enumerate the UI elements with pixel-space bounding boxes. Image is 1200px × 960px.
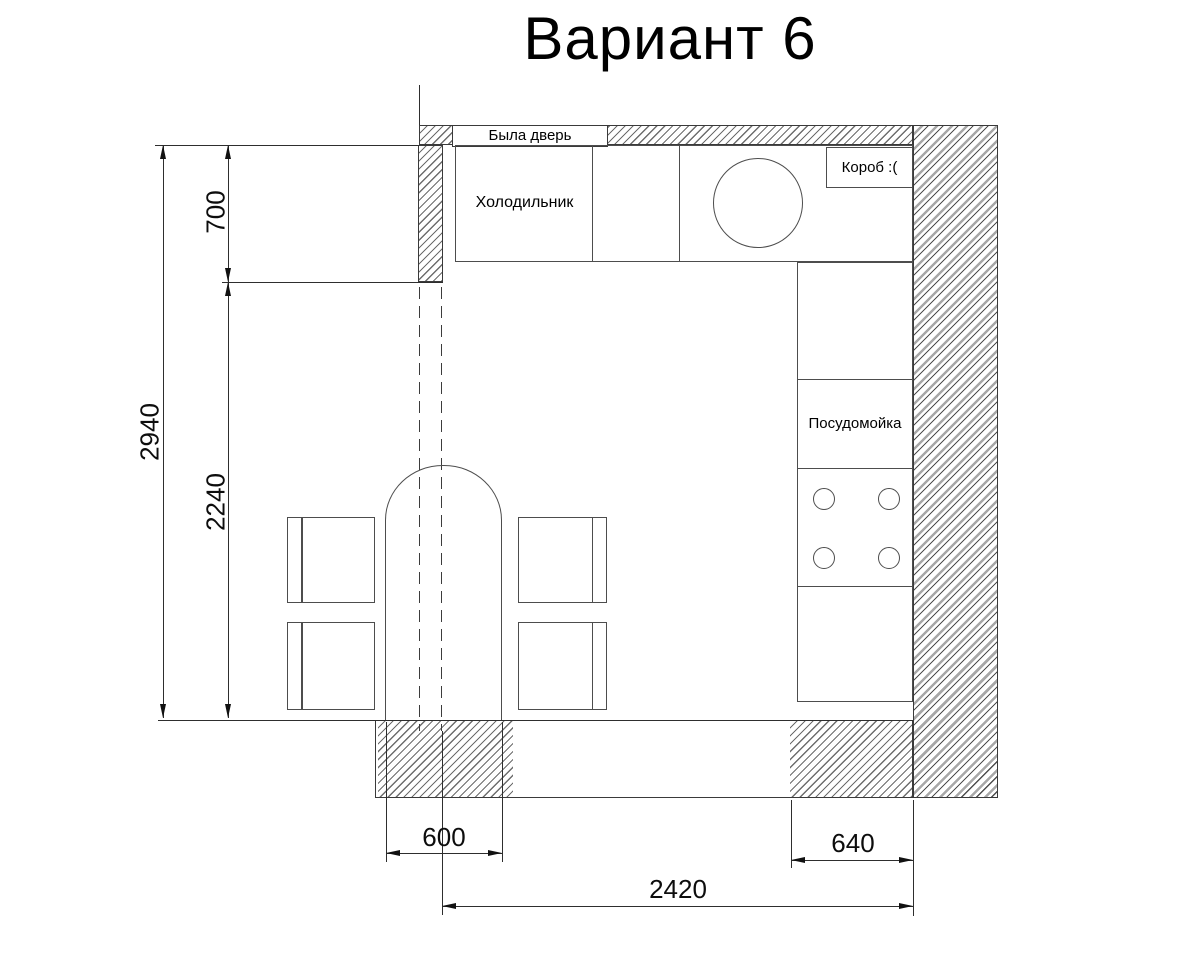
burner-icon [813, 488, 835, 510]
counter-right-run: Посудомойка [797, 262, 913, 702]
former-door-label: Была дверь [489, 127, 572, 144]
dim-text-640: 640 [792, 828, 914, 859]
page-title: Вариант 6 [400, 4, 940, 73]
former-door-opening: Была дверь [452, 125, 608, 147]
chair-back-line [592, 623, 594, 709]
dim-arrow [160, 145, 166, 159]
wall-axis-stub-line [419, 85, 420, 125]
wall-bottom-hatch-right [790, 721, 912, 797]
fridge-label: Холодильник [456, 194, 593, 212]
wall-bottom [375, 720, 913, 798]
dim-arrow [225, 282, 231, 296]
dim-arrow [225, 268, 231, 282]
dim-line-2420 [442, 906, 913, 907]
counter-divider-5 [798, 586, 912, 587]
chair-back-line [592, 518, 594, 602]
wall-bottom-hatch-left [378, 721, 513, 797]
dim-arrow [442, 903, 456, 909]
burner-icon [878, 547, 900, 569]
chair [518, 622, 607, 710]
dim-line-640 [791, 860, 913, 861]
floor-plan-canvas: Вариант 6 Была дверь Холодильник Короб :… [0, 0, 1200, 960]
wall-left [418, 145, 443, 282]
burner-icon [878, 488, 900, 510]
floor-line [158, 720, 913, 721]
dim-text-2940: 2940 [135, 403, 166, 461]
dim-text-2240: 2240 [201, 473, 232, 531]
dim-arrow [225, 145, 231, 159]
counter-divider-4 [798, 468, 912, 469]
burner-icon [813, 547, 835, 569]
chair-back-line [301, 518, 303, 602]
dim-text-700: 700 [201, 190, 232, 233]
duct-box: Короб :( [826, 147, 913, 188]
chair-back-line [301, 623, 303, 709]
dim-arrow [899, 903, 913, 909]
counter-divider-3 [798, 379, 912, 380]
dim-text-600: 600 [384, 822, 504, 853]
dim-line-600 [386, 853, 502, 854]
dim-arrow [160, 704, 166, 718]
wall-right [913, 125, 998, 798]
arched-doorway [385, 465, 502, 720]
dishwasher-label: Посудомойка [798, 415, 912, 432]
dim-text-2420: 2420 [518, 874, 838, 905]
sink-icon [713, 158, 803, 248]
chair [518, 517, 607, 603]
chair [287, 622, 375, 710]
wall-top: Была дверь [419, 125, 913, 145]
chair [287, 517, 375, 603]
counter-divider-2 [679, 146, 680, 261]
ext-line-wall-end [222, 282, 443, 283]
dim-arrow [225, 704, 231, 718]
ext-line-top [155, 145, 419, 146]
duct-label: Короб :( [842, 159, 898, 176]
